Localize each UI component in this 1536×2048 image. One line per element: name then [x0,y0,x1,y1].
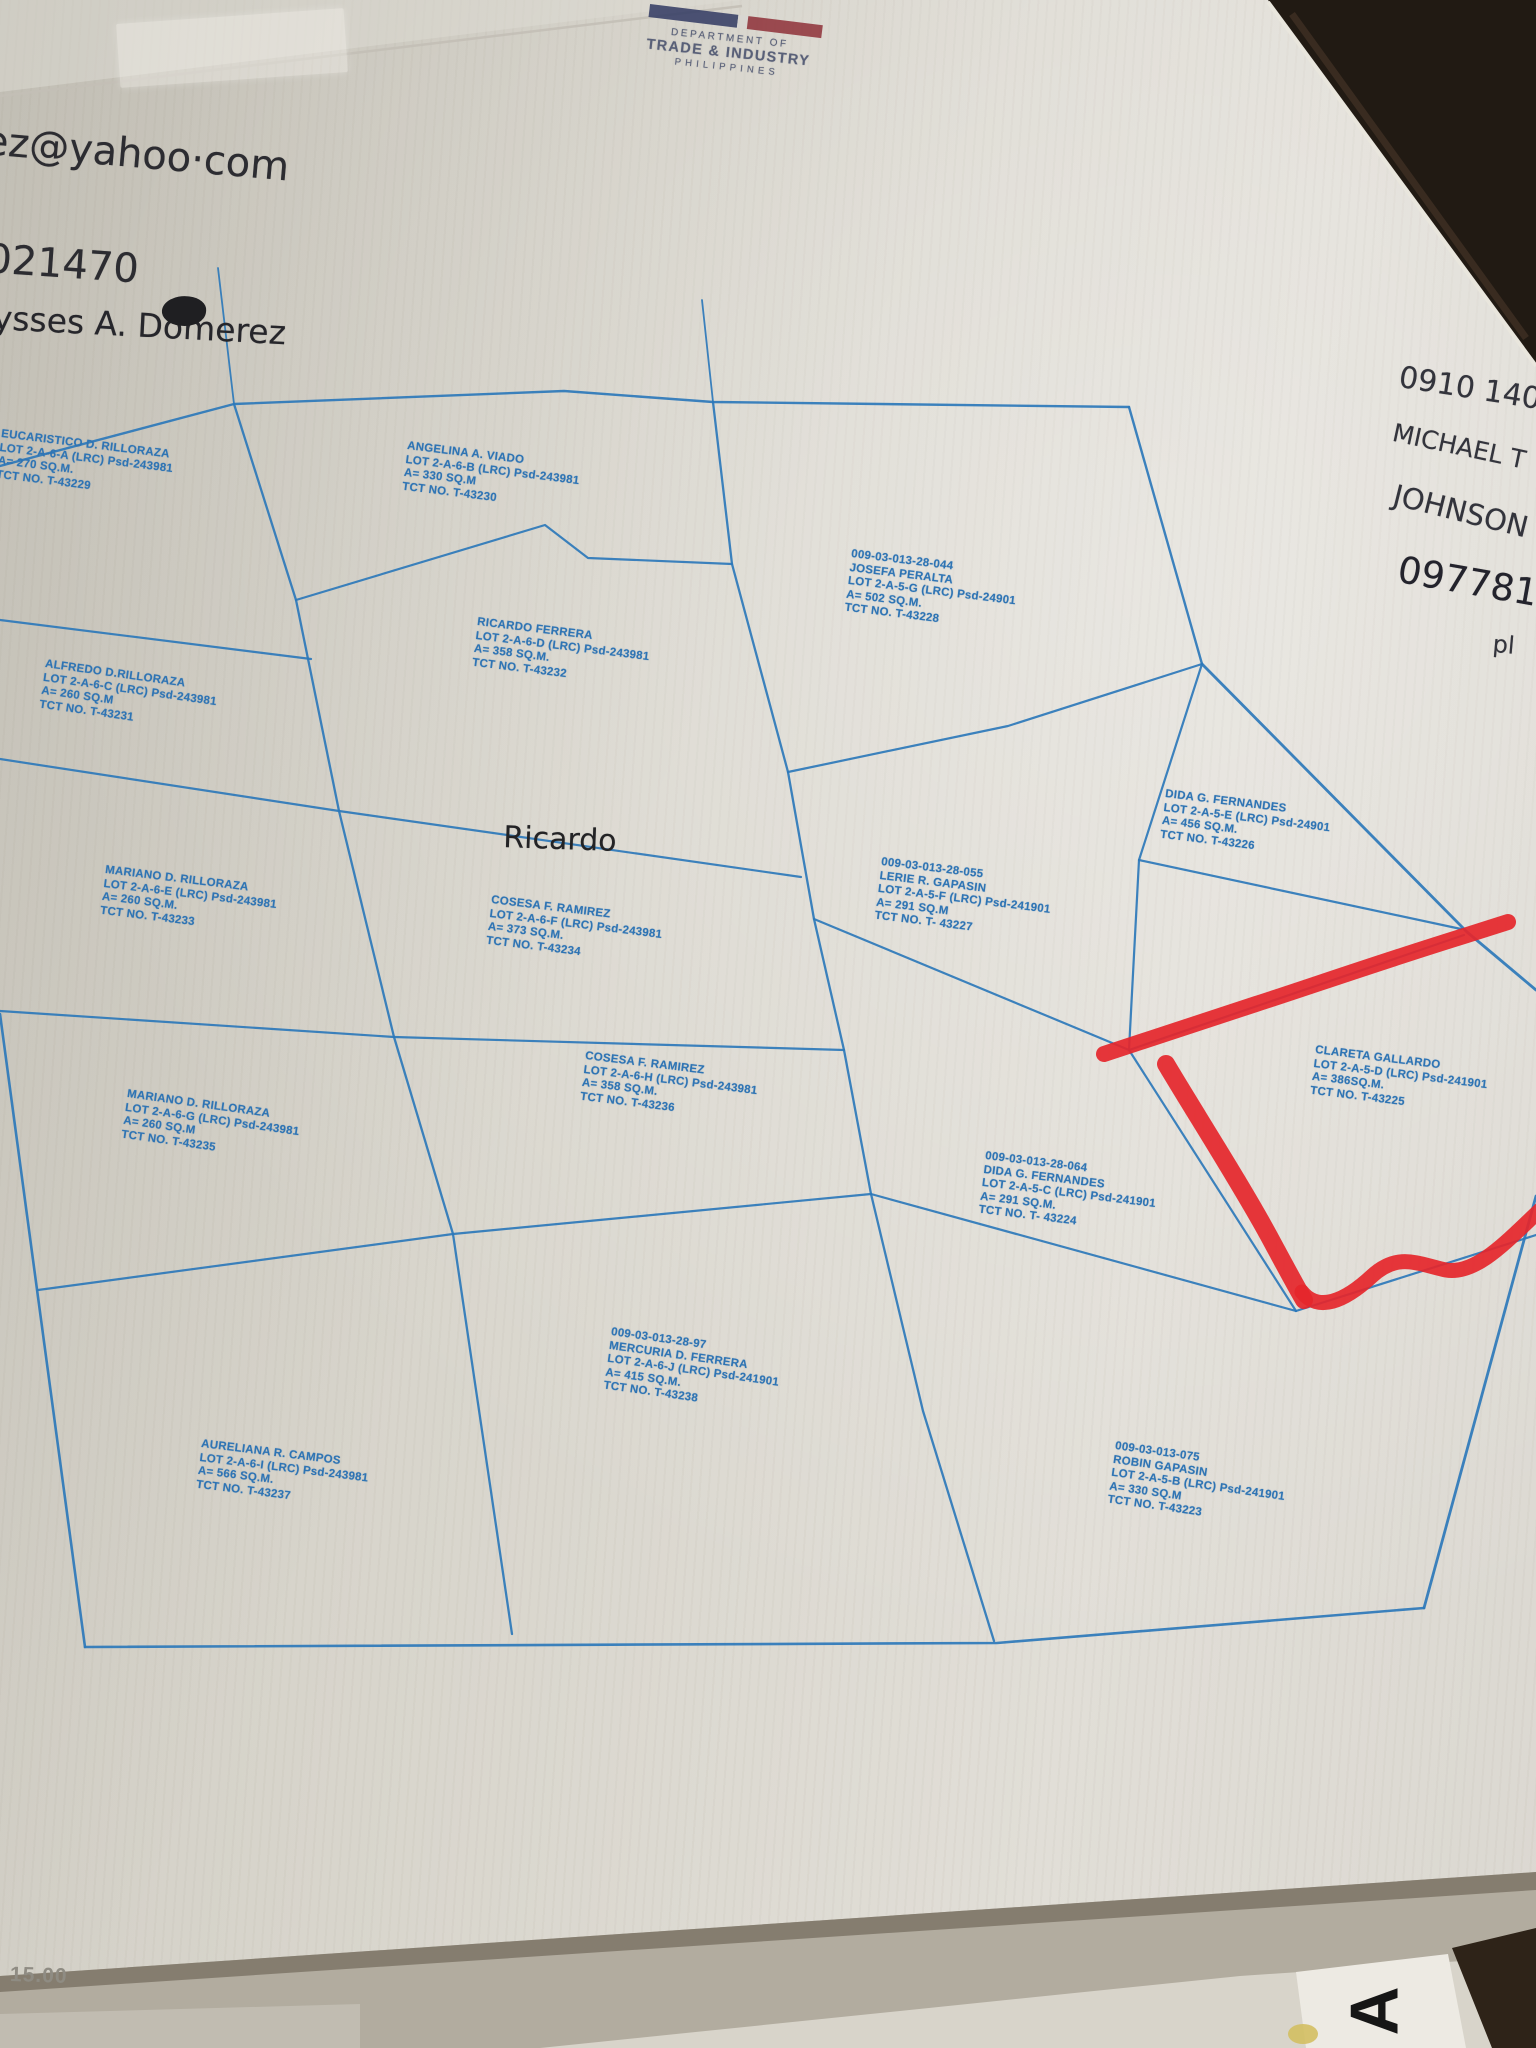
boundary-didatop-bottom [1139,860,1461,929]
boundary-row-alfredo-mariano [0,759,801,877]
boundary-top-edge [0,391,1129,466]
boundary-lerie-dida064-split [814,919,1129,1050]
boundary-left-edge [0,1014,85,1647]
boundary-column-line-west [234,404,512,1634]
bottom-right-letter: A [1336,1986,1414,2035]
red-left-stroke [1166,1064,1304,1300]
boundary-row-eucaristico-alfredo [0,620,311,659]
red-top-stroke [1104,922,1508,1054]
boundary-angelina-bottom [296,525,732,600]
boundary-column-line-east [1129,664,1202,1050]
scale-note: 15.00 [10,1963,68,1989]
boundary-stub-west [218,268,234,404]
photo-of-subdivision-plan: DEPARTMENT OF TRADE & INDUSTRY PHILIPPIN… [0,0,1536,2048]
boundary-row-mariano-marianog-left [0,1011,394,1037]
boundary-cosesa-h-bottom [453,1194,871,1234]
boundary-cosesa-f-bottom [394,1037,844,1050]
boundary-right-upper-edge [1202,664,1536,990]
yellow-smudge [1288,2024,1318,2044]
boundary-josefa-bottom [788,664,1202,772]
boundary-stub-mid [702,300,713,402]
boundary-bottom-edge [85,1608,1424,1647]
subdivision-plan-drawing [0,0,1536,2048]
boundary-column-line-mid [713,402,994,1641]
lot-boundary-lines [0,268,1536,1647]
red-bottom-stroke [1302,1210,1536,1303]
boundary-top-right-slant [1129,407,1202,664]
boundary-row-marianog-aureliana [38,1234,453,1290]
